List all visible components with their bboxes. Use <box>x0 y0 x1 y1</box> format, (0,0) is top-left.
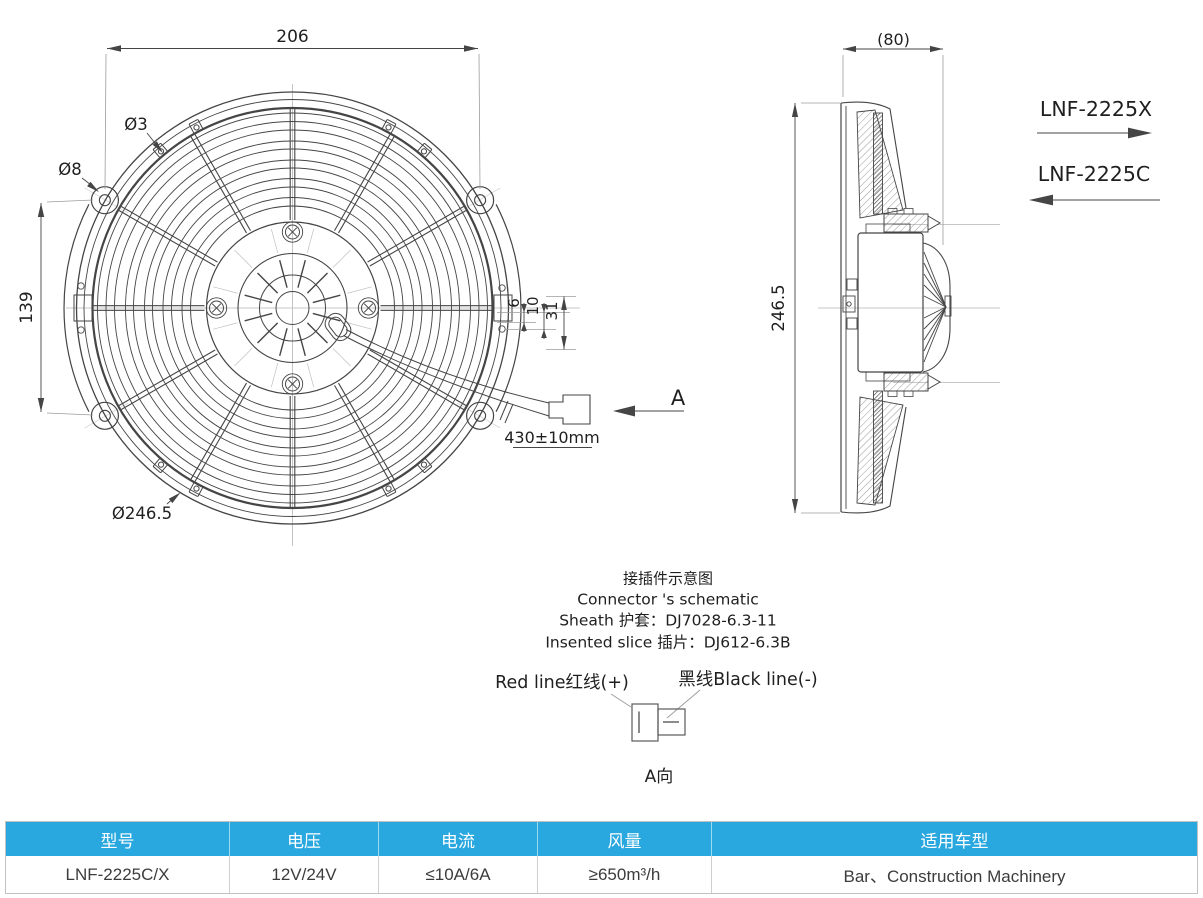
spec-header-voltage: 电压 <box>230 822 379 856</box>
spec-value-model: LNF-2225C/X <box>6 856 230 893</box>
dim-ear-hole-label: Ø8 <box>58 160 82 179</box>
dim-depth-label: (80) <box>877 30 910 49</box>
view-a-direction-label: A向 <box>645 767 674 787</box>
connector-schematic <box>611 690 700 741</box>
technical-drawing: 206 Ø3 Ø8 139 Ø246.5 6 10 31 430±10mm A … <box>0 0 1203 815</box>
connector-insert-label: Insented slice 插片：DJ612-6.3B <box>545 634 790 652</box>
red-wire-label: Red line红线(+) <box>495 673 629 693</box>
fan-side-view <box>818 102 1000 513</box>
dim-side-height-label: 246.5 <box>769 284 788 331</box>
model-pull-label: LNF-2225C <box>1038 162 1150 186</box>
spec-table-header-row: 型号 电压 电流 风量 适用车型 <box>6 822 1197 856</box>
motor-vent-starburst <box>924 252 946 362</box>
wire-plug <box>549 395 590 424</box>
dim-clip-hole-label: Ø3 <box>124 115 148 134</box>
fan-front-view <box>64 84 590 546</box>
wire-length-label: 430±10mm <box>504 428 599 447</box>
connector-title-en: Connector 's schematic <box>577 591 759 609</box>
dim-31-label: 31 <box>543 301 561 320</box>
connector-sheath <box>632 704 658 741</box>
spec-value-current: ≤10A/6A <box>379 856 538 893</box>
dim-10-label: 10 <box>524 296 542 315</box>
arrow-right <box>1128 128 1152 139</box>
black-wire-label: 黑线Black line(-) <box>678 670 817 690</box>
spec-table: 型号 电压 电流 风量 适用车型 LNF-2225C/X 12V/24V ≤10… <box>5 821 1198 894</box>
spec-header-model: 型号 <box>6 822 230 856</box>
dim-width-label: 206 <box>276 27 308 47</box>
spec-header-airflow: 风量 <box>538 822 712 856</box>
spec-value-application: Bar、Construction Machinery <box>712 856 1197 893</box>
spec-value-airflow: ≥650m³/h <box>538 856 712 893</box>
connector-sheath-label: Sheath 护套：DJ7028-6.3-11 <box>559 612 777 630</box>
spec-header-application: 适用车型 <box>712 822 1197 856</box>
model-push-label: LNF-2225X <box>1040 97 1152 121</box>
dim-height-label: 139 <box>17 291 37 323</box>
spec-value-voltage: 12V/24V <box>230 856 379 893</box>
motor-body <box>858 233 923 372</box>
arrow-left <box>1029 195 1053 206</box>
dim-diameter-label: Ø246.5 <box>112 504 172 523</box>
connector-title-zh: 接插件示意图 <box>623 570 713 588</box>
view-a-label: A <box>671 386 686 410</box>
spec-header-current: 电流 <box>379 822 538 856</box>
dim-6-label: 6 <box>505 298 523 308</box>
spec-table-data-row: LNF-2225C/X 12V/24V ≤10A/6A ≥650m³/h Bar… <box>6 856 1197 893</box>
